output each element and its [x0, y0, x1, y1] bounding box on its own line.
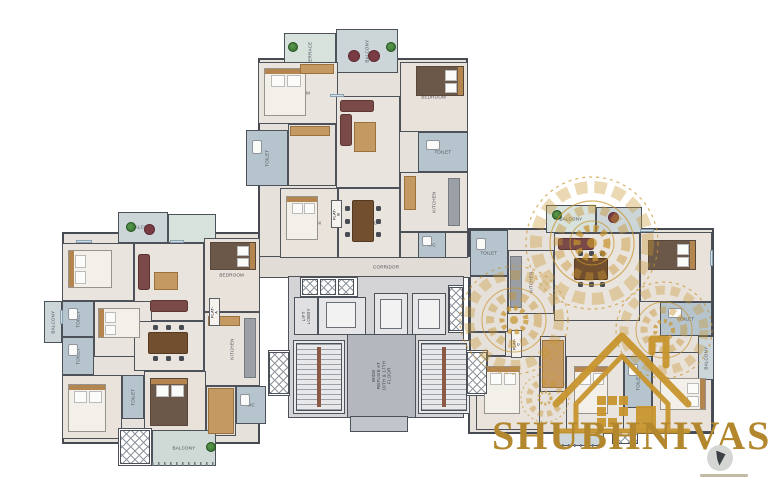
lift-lobby-label: LIFT LOBBY: [301, 308, 311, 324]
floor-plan: CORRIDORTERRACEBALCONYBEDROOMTOILETLIVIN…: [0, 0, 770, 483]
lift-lobby: LIFT LOBBY: [294, 297, 318, 335]
wood-icon: [354, 122, 376, 152]
flat-b-tag-label: FLAT-B: [332, 208, 341, 219]
hatch-icon: [467, 352, 487, 394]
chair-icon: [345, 206, 350, 211]
win-icon: [640, 229, 654, 232]
hatch-icon: [302, 279, 318, 295]
flat-a-tag: FLAT-A: [209, 298, 220, 326]
developer-logo-caption: [700, 474, 748, 477]
wood-icon: [290, 126, 330, 136]
fix-icon: [422, 236, 432, 246]
fix-icon: [68, 344, 78, 356]
quill-icon: [715, 451, 726, 466]
chair-icon: [153, 356, 158, 361]
chair-icon: [166, 356, 171, 361]
toilet-c1: TOILET: [470, 230, 508, 276]
bed-icon: [660, 378, 706, 410]
toilet-c1-label: TOILET: [481, 250, 498, 255]
win-icon: [330, 94, 344, 97]
counter-icon: [448, 178, 460, 226]
core-stub: [350, 416, 408, 432]
bed-icon: [286, 196, 318, 240]
fix-icon: [628, 364, 638, 376]
bedD-icon: [416, 66, 464, 96]
toilet-b1: TOILET: [246, 130, 288, 186]
balcony-c-right: BALCONY: [698, 336, 714, 380]
bed-icon: [98, 308, 140, 338]
wood-icon: [208, 388, 234, 434]
chair-icon: [345, 232, 350, 237]
sofa-icon: [340, 114, 352, 146]
rtable-icon: [144, 224, 155, 235]
chair-icon: [600, 282, 605, 287]
rtable-icon: [348, 50, 360, 62]
passage-c: [470, 276, 508, 332]
floor-plan-image: CORRIDORTERRACEBALCONYBEDROOMTOILETLIVIN…: [0, 0, 770, 483]
toilet-a3: TOILET: [122, 375, 144, 419]
hatch-icon: [120, 430, 150, 464]
win-icon: [60, 310, 63, 324]
bedD-icon: [648, 240, 696, 270]
plant-icon: [206, 442, 216, 452]
flat-c-tag: FLAT-C: [511, 330, 522, 358]
fix-icon: [668, 308, 682, 318]
chair-icon: [153, 325, 158, 330]
rtable-icon: [608, 212, 619, 223]
toilet-a2: TOILET: [62, 337, 94, 375]
wood-icon: [542, 340, 564, 388]
corridor-label: CORRIDOR: [373, 264, 399, 269]
bed-icon: [68, 384, 106, 432]
chair-icon: [345, 219, 350, 224]
sofa-icon: [138, 254, 150, 290]
chair-icon: [578, 251, 583, 256]
wood-icon: [154, 272, 178, 290]
toilet-b2-label: TOILET: [435, 149, 452, 154]
wood-icon: [404, 176, 416, 210]
bed-icon: [574, 366, 608, 414]
toilet-a1: TOILET: [62, 301, 94, 337]
plant-icon: [126, 222, 136, 232]
balcony-a-bottom-label: BALCONY: [173, 445, 196, 450]
fix-icon: [426, 140, 440, 150]
win-icon: [170, 240, 184, 243]
balcony-c-top-label: BALCONY: [560, 216, 583, 221]
chair-icon: [166, 325, 171, 330]
sofa-icon: [558, 238, 594, 250]
win-icon: [710, 250, 713, 266]
counter-icon: [510, 256, 522, 308]
wood-icon: [300, 64, 334, 74]
stairs-icon: [296, 343, 342, 411]
plant-icon: [288, 42, 298, 52]
plant-icon: [386, 42, 396, 52]
kitchen-c-label: KITCHEN: [528, 271, 533, 292]
sofa-icon: [340, 100, 374, 112]
bed-icon: [484, 366, 520, 414]
fix-icon: [476, 238, 486, 250]
kitchen-a-label: KITCHEN: [229, 338, 234, 359]
stairs-icon: [421, 343, 467, 411]
hatch-icon: [338, 279, 354, 295]
kitchen-b-label: KITCHEN: [431, 191, 436, 212]
chair-icon: [179, 325, 184, 330]
chair-icon: [376, 232, 381, 237]
sofa-icon: [150, 300, 188, 312]
chair-icon: [376, 219, 381, 224]
hatch-icon: [269, 352, 289, 394]
hatch-icon: [449, 287, 463, 331]
bedD-icon: [210, 242, 256, 270]
table-icon: [148, 332, 188, 354]
toilet-b2: TOILET: [418, 132, 468, 172]
bed-icon: [68, 250, 112, 288]
flat-b-tag: FLAT-B: [331, 200, 342, 228]
hatch-icon: [320, 279, 336, 295]
bedD-icon: [150, 378, 188, 426]
liftcar-icon: [380, 299, 402, 329]
chair-icon: [179, 356, 184, 361]
flat-a-tag-label: FLAT-A: [210, 306, 219, 317]
terrace-c-top: [596, 207, 642, 233]
developer-logo-icon: [707, 445, 733, 471]
balcony-a-left-label: BALCONY: [50, 311, 55, 334]
chair-icon: [589, 251, 594, 256]
toilet-c2: TOILET: [660, 302, 712, 336]
chair-icon: [589, 282, 594, 287]
counter-icon: [244, 318, 256, 378]
table-icon: [574, 258, 608, 280]
chair-icon: [600, 251, 605, 256]
liftcar-icon: [326, 302, 356, 328]
liftcar-icon: [418, 299, 440, 329]
balcony-c-right-label: BALCONY: [703, 347, 708, 370]
toilet-a3-label: TOILET: [130, 389, 135, 406]
toilet-c3-label: TOILET: [635, 374, 640, 391]
bedroom-a2-label: BEDROOM: [220, 272, 245, 277]
fix-icon: [252, 140, 262, 154]
toilet-b1-label: TOILET: [264, 150, 269, 167]
refuge-shaft: WIDE REFUGE AT 10TH & 17TH FLOOR: [347, 334, 416, 418]
refuge-shaft-label: WIDE REFUGE AT 10TH & 17TH FLOOR: [371, 359, 392, 393]
plant-icon: [552, 210, 562, 220]
fix-icon: [68, 308, 78, 320]
table-icon: [352, 200, 374, 242]
chair-icon: [376, 206, 381, 211]
rtable-icon: [368, 50, 380, 62]
win-icon: [76, 240, 92, 243]
chair-icon: [578, 282, 583, 287]
fix-icon: [240, 394, 250, 406]
bed-icon: [264, 68, 306, 116]
flat-c-tag-label: FLAT-C: [512, 338, 521, 349]
rail-icon: [152, 462, 216, 466]
